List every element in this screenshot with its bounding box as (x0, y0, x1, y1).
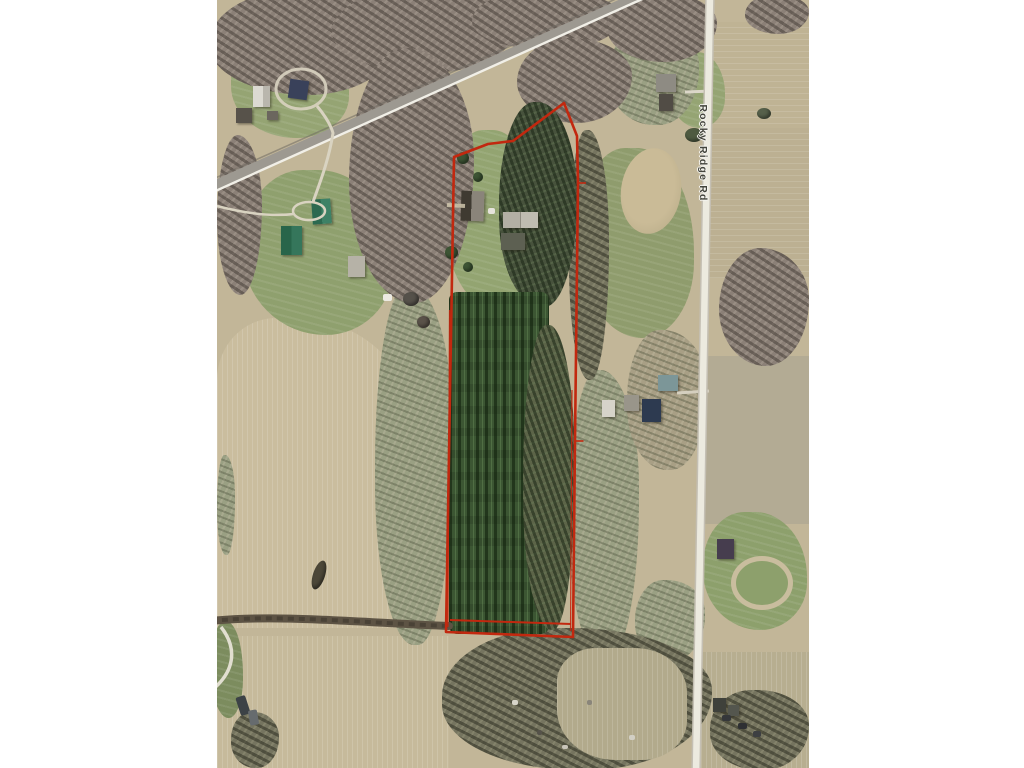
driveway-loop (276, 69, 326, 109)
driveway (217, 205, 294, 215)
highway-edge-line (217, 0, 649, 197)
map-overlay-graphics (217, 0, 809, 768)
parcel-boundary-outline (446, 103, 578, 637)
track-arc (217, 627, 232, 690)
road-label-rocky-ridge-rd: Rocky Ridge Rd (697, 104, 709, 201)
driveway (447, 205, 465, 206)
parcel-boundary-inner-bottom (450, 620, 571, 624)
driveway (313, 106, 333, 202)
driveway-loop (293, 202, 325, 220)
aerial-photo: Rocky Ridge Rd (217, 0, 809, 768)
highway-asphalt (217, 0, 651, 191)
page: { "map": { "road_label": "Rocky Ridge Rd… (0, 0, 1024, 768)
parcel-boundary-inner-right (571, 390, 573, 631)
parcel-boundary-inner-left (448, 310, 450, 627)
